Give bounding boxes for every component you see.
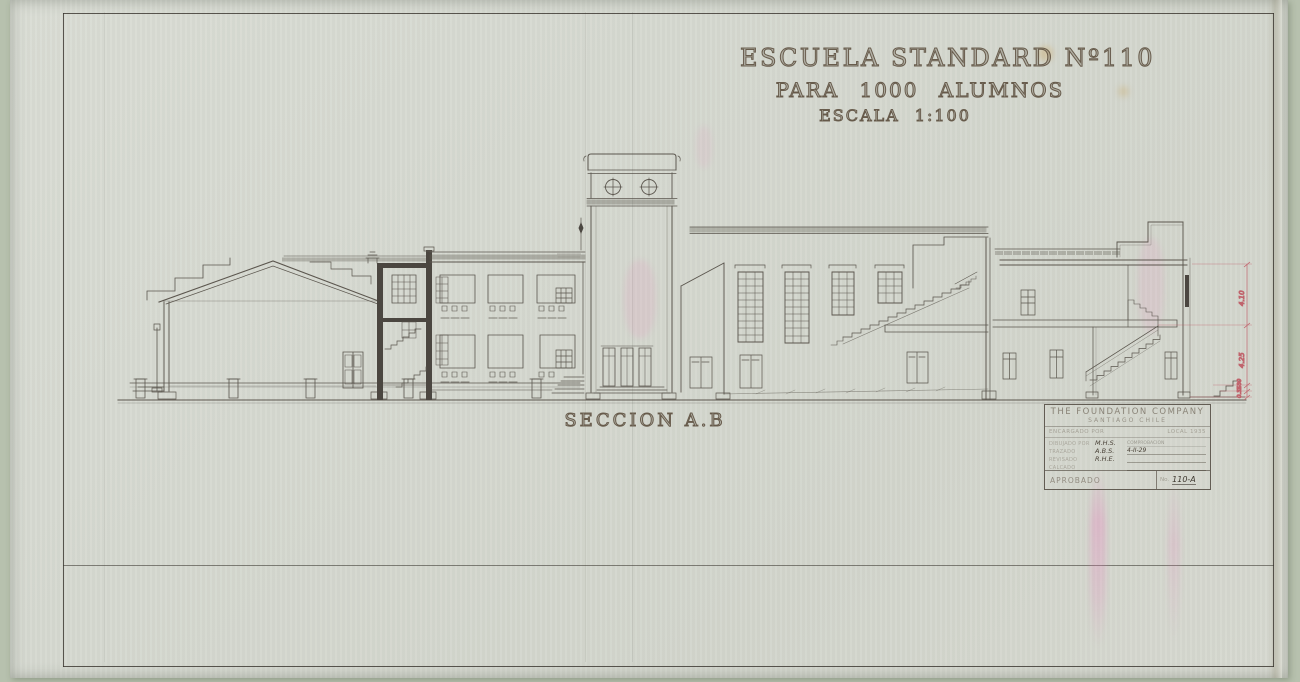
company-name: THE FOUNDATION COMPANY	[1045, 405, 1210, 417]
title-block: THE FOUNDATION COMPANY SANTIAGO CHILE EN…	[1044, 404, 1211, 490]
dimension-label-lower: 4.25	[1238, 352, 1246, 368]
approved-label: APROBADO	[1045, 471, 1156, 489]
sheet-scale: ESCALA 1:100	[745, 106, 1045, 125]
drawing-number-cell: No. 110-A	[1156, 471, 1210, 489]
number-label: No.	[1160, 477, 1169, 483]
signature-row: TRAZADO A.B.S. 4-II-29	[1049, 447, 1206, 455]
drawing-sheet: 4.10 4.25 0.80 0.35 ESCUELA STANDARD Nº1…	[0, 0, 1300, 682]
tower	[558, 154, 680, 393]
sheet-title: ESCUELA STANDARD Nº110	[740, 44, 1150, 72]
classroom-facade	[430, 252, 585, 393]
row-label: REVISADO	[1049, 457, 1095, 463]
ground-line	[118, 379, 1246, 403]
client-row: ENCARGADO POR LOCAL 1935	[1045, 427, 1210, 438]
stair-tower-section	[377, 247, 434, 400]
client-label: ENCARGADO POR	[1049, 429, 1104, 435]
assembly-hall-section	[681, 227, 990, 400]
dimension-label-upper: 4.10	[1238, 290, 1246, 306]
row-label: DIBUJADO POR	[1049, 441, 1095, 447]
right-wing-section	[993, 222, 1190, 395]
row-note: COMPROBACION	[1127, 441, 1206, 447]
row-initials: R.H.E.	[1095, 455, 1127, 463]
company-location: SANTIAGO CHILE	[1045, 417, 1210, 427]
signature-row: REVISADO R.H.E.	[1049, 455, 1206, 463]
dimension-label-small2: 0.35	[1237, 385, 1243, 398]
section-label: SECCION A.B	[545, 410, 745, 431]
row-label: TRAZADO	[1049, 449, 1095, 455]
row-note	[1127, 462, 1206, 463]
row-date: 4-II-29	[1127, 447, 1206, 455]
approval-row: APROBADO No. 110-A	[1045, 470, 1210, 489]
signature-row: DIBUJADO POR M.H.S. COMPROBACION	[1049, 439, 1206, 447]
sheet-subtitle: PARA 1000 ALUMNOS	[740, 78, 1100, 102]
section-drawing: 4.10 4.25 0.80 0.35	[0, 0, 1300, 682]
row-initials: M.H.S.	[1095, 439, 1127, 447]
client-value: LOCAL 1935	[1167, 429, 1206, 435]
signature-rows: DIBUJADO POR M.H.S. COMPROBACION TRAZADO…	[1045, 438, 1210, 471]
number-value: 110-A	[1172, 475, 1196, 485]
row-initials: A.B.S.	[1095, 447, 1127, 455]
